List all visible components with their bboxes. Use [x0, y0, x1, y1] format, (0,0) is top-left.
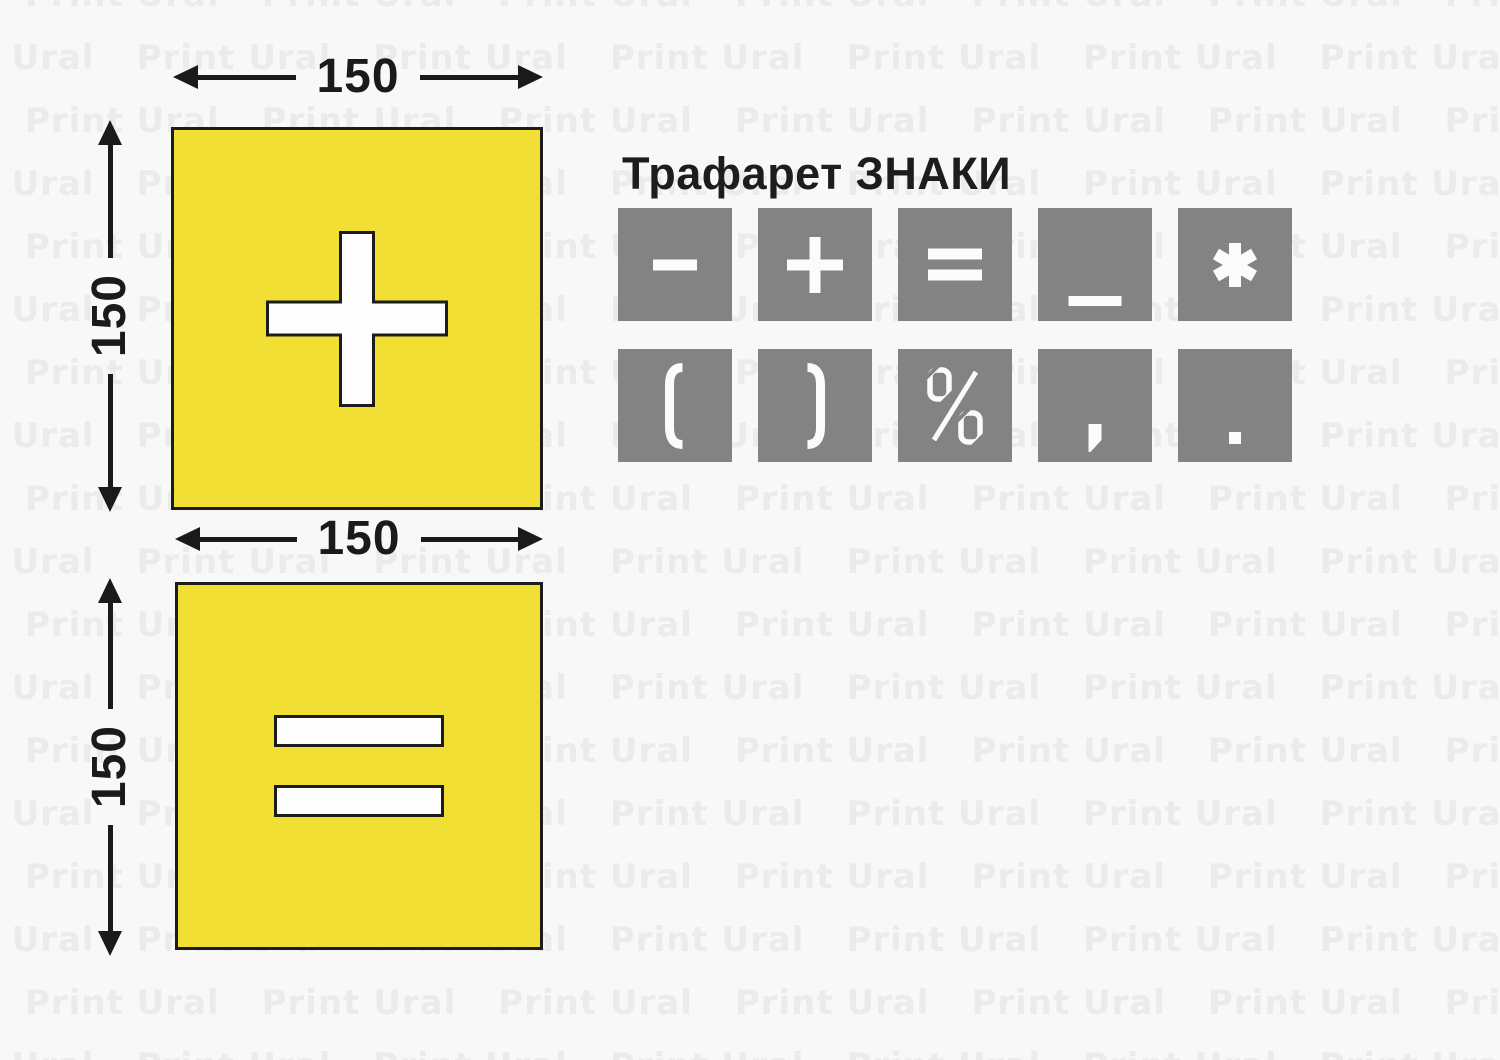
equals-icon: [928, 270, 982, 281]
plus-icon: [787, 259, 843, 270]
equals-stencil-square: [175, 582, 543, 950]
dimension-line: [420, 75, 518, 80]
dimension-width-equals-stencil: 150: [175, 516, 543, 562]
dimension-label: 150: [317, 515, 400, 563]
arrowhead-up-icon: [98, 578, 122, 603]
dimension-label: 150: [86, 725, 134, 808]
dimension-height-equals-stencil: 150: [86, 578, 134, 956]
tile-minus: [618, 208, 732, 321]
arrowhead-right-icon: [518, 527, 543, 551]
arrowhead-right-icon: [518, 65, 543, 89]
dimension-line: [421, 537, 518, 542]
minus-icon: [653, 259, 697, 270]
comma-icon: [1089, 424, 1102, 452]
arrowhead-left-icon: [175, 527, 200, 551]
tile-plus: [758, 208, 872, 321]
tile-parenthesis-close: [758, 349, 872, 462]
tile-equals: [898, 208, 1012, 321]
dimension-line: [108, 603, 113, 709]
tile-comma: [1038, 349, 1152, 462]
dimension-height-plus-stencil: 150: [86, 120, 134, 512]
stencil-product-sheet: Print UralPrint UralPrint UralPrint Ural…: [0, 0, 1500, 1060]
tile-parenthesis-open: [618, 349, 732, 462]
tile-percent: [898, 349, 1012, 462]
equals-bar-top: [274, 715, 444, 747]
signs-tile-grid: [618, 208, 1292, 462]
dimension-label: 150: [86, 274, 134, 357]
equals-icon: [928, 249, 982, 260]
dimension-line: [108, 145, 113, 258]
arrowhead-left-icon: [173, 65, 198, 89]
dimension-width-plus-stencil: 150: [173, 54, 543, 100]
dimension-line: [200, 537, 297, 542]
arrowhead-down-icon: [98, 931, 122, 956]
dimension-line: [108, 374, 113, 487]
dimension-line: [198, 75, 296, 80]
page-title: Трафарет ЗНАКИ: [622, 151, 1011, 196]
parenthesis-close-icon: [800, 363, 830, 449]
plus-stencil-square: [171, 127, 543, 510]
period-icon: [1229, 432, 1241, 444]
equals-cutout-icon: [274, 715, 444, 817]
plus-cutout-icon: [265, 230, 449, 408]
arrowhead-down-icon: [98, 487, 122, 512]
dimension-label: 150: [316, 53, 399, 101]
tile-underscore: [1038, 208, 1152, 321]
percent-icon: [927, 367, 983, 445]
arrowhead-up-icon: [98, 120, 122, 145]
dimension-line: [108, 825, 113, 931]
underscore-icon: [1069, 296, 1122, 306]
parenthesis-open-icon: [660, 363, 690, 449]
tile-period: [1178, 349, 1292, 462]
tile-asterisk: [1178, 208, 1292, 321]
equals-bar-bottom: [274, 785, 444, 817]
